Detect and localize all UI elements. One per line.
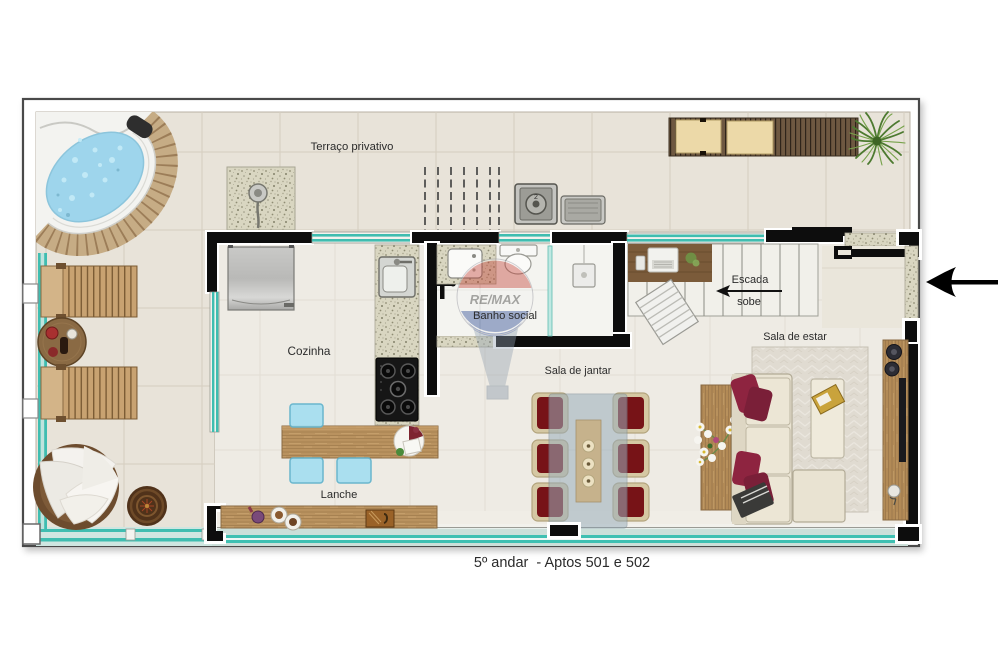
svg-text:Terraço privativo: Terraço privativo [311,141,394,153]
svg-text:5º andar - Aptos 501 e 502: 5º andar - Aptos 501 e 502 [474,555,650,571]
svg-text:Cozinha: Cozinha [288,345,331,358]
svg-text:Sala de jantar: Sala de jantar [545,365,612,377]
svg-text:Banho social: Banho social [473,310,537,322]
svg-text:RE/MAX: RE/MAX [470,292,522,307]
svg-text:Escada: Escada [732,274,770,286]
svg-text:sobe: sobe [737,296,761,308]
svg-text:Sala de estar: Sala de estar [763,331,827,343]
svg-text:2: 2 [534,194,538,201]
svg-text:Lanche: Lanche [321,489,358,501]
